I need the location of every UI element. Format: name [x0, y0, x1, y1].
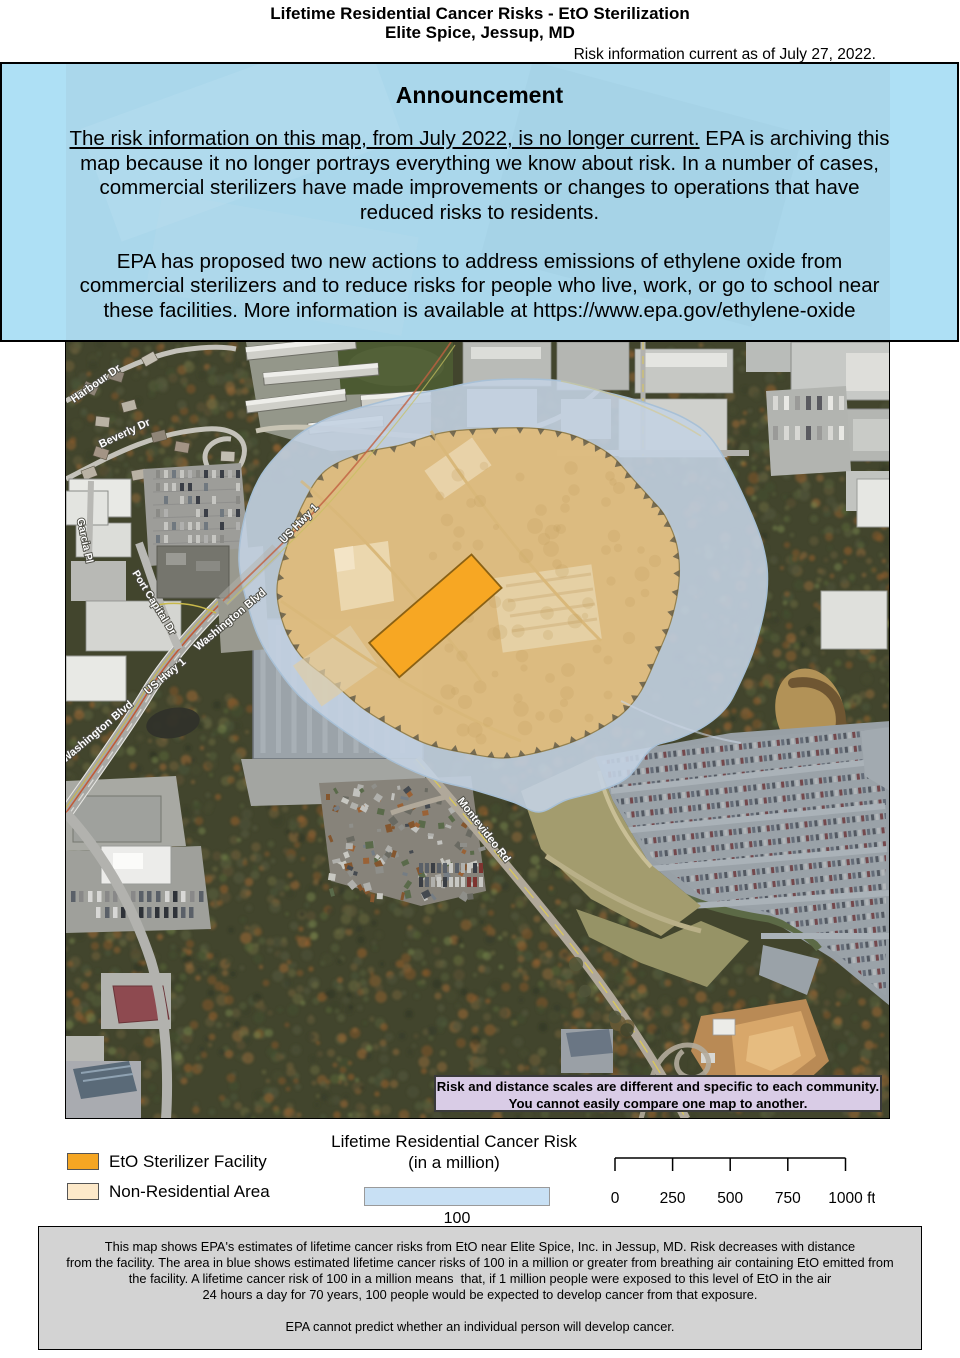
- svg-text:250: 250: [660, 1190, 686, 1207]
- svg-text:1000 ft: 1000 ft: [828, 1190, 875, 1207]
- svg-text:0: 0: [611, 1190, 620, 1207]
- svg-text:500: 500: [717, 1190, 743, 1207]
- svg-text:750: 750: [775, 1190, 801, 1207]
